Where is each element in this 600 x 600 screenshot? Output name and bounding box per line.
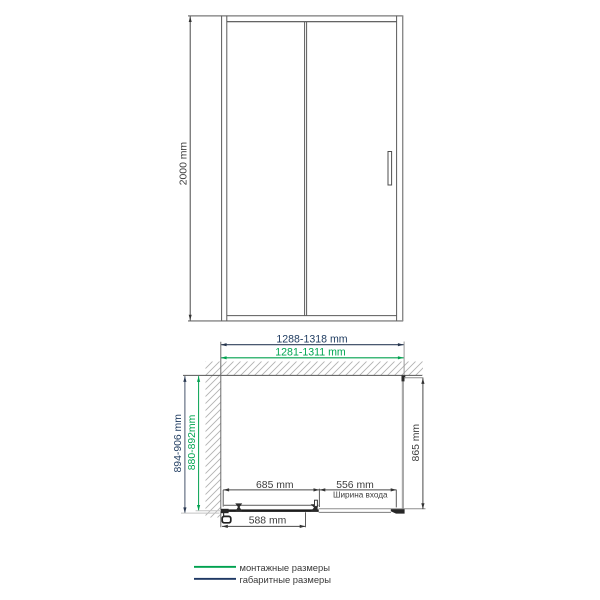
svg-text:1281-1311 mm: 1281-1311 mm [275,346,346,358]
svg-text:865 mm: 865 mm [411,424,422,462]
svg-text:монтажные размеры: монтажные размеры [240,562,331,573]
svg-text:Ширина входа: Ширина входа [333,491,388,500]
svg-text:1288-1318 mm: 1288-1318 mm [276,334,347,346]
svg-text:588 mm: 588 mm [249,516,287,527]
svg-text:880-892mm: 880-892mm [187,415,198,470]
svg-text:685 mm: 685 mm [256,480,294,491]
svg-text:габаритные размеры: габаритные размеры [240,574,332,585]
svg-text:2000 mm: 2000 mm [178,142,189,185]
svg-text:556 mm: 556 mm [336,480,374,491]
svg-text:894-906 mm: 894-906 mm [173,414,184,472]
